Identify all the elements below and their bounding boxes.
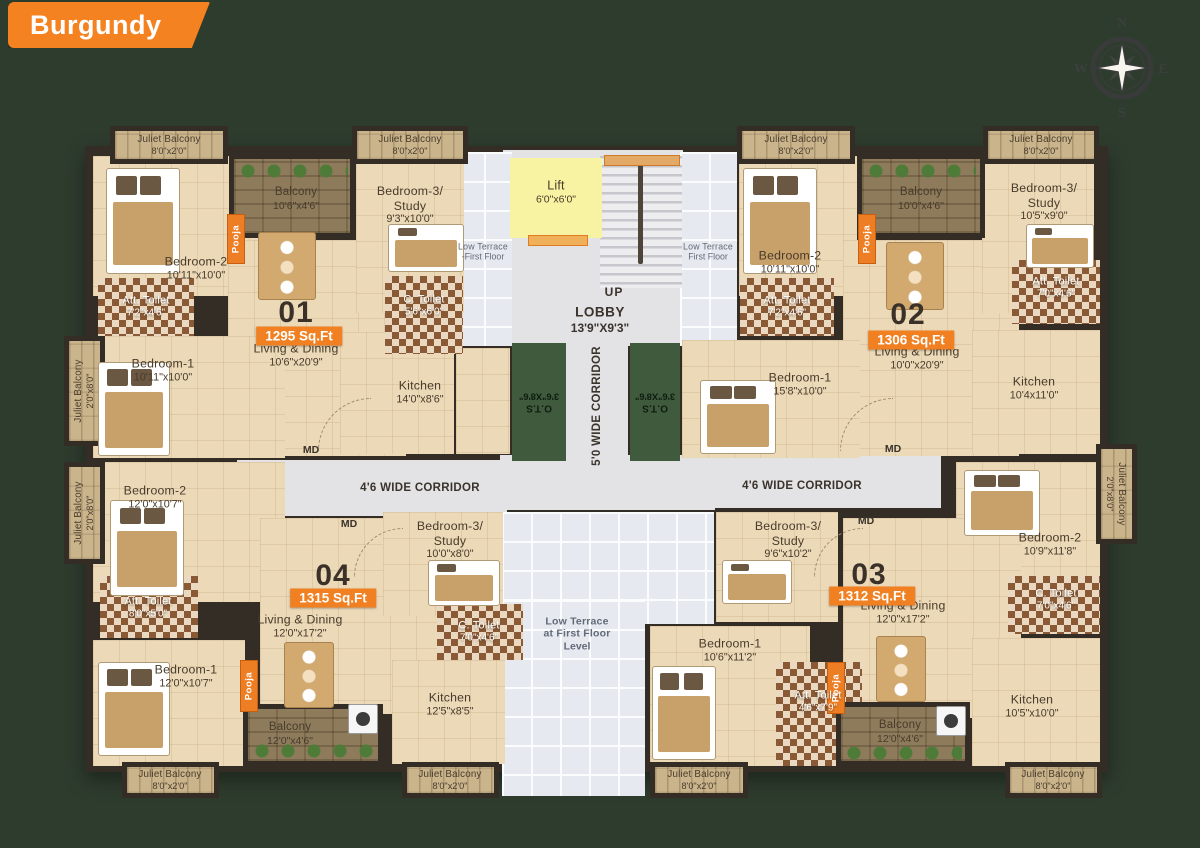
u04-pooja bbox=[240, 660, 258, 712]
dining-table-icon bbox=[876, 636, 926, 702]
low-terrace-right bbox=[680, 152, 737, 346]
bed-icon bbox=[98, 662, 170, 756]
plants-icon bbox=[844, 744, 962, 764]
plants-icon bbox=[866, 162, 976, 182]
juliet-balcony-left-2 bbox=[64, 462, 105, 564]
dining-table-icon bbox=[258, 232, 316, 300]
washing-machine-icon bbox=[348, 704, 378, 734]
floor-plan: Burgundy N W E S Low Terrace-First bbox=[0, 0, 1200, 848]
bed-icon bbox=[98, 362, 170, 456]
unit-04-area-badge: 1315 Sq.Ft bbox=[290, 589, 376, 608]
u02-att-toilet-1 bbox=[740, 278, 834, 336]
bed-icon bbox=[110, 500, 184, 596]
ots-left bbox=[512, 343, 566, 461]
page-title: Burgundy bbox=[8, 10, 162, 41]
u03-kitchen bbox=[972, 638, 1100, 766]
unit-01-number: 01 bbox=[278, 296, 313, 330]
u01-att-toilet bbox=[98, 278, 194, 336]
juliet-balcony-bottom-4 bbox=[1005, 762, 1102, 798]
single-bed-icon bbox=[1026, 224, 1094, 268]
single-bed-icon bbox=[428, 560, 500, 606]
corridor-right-band bbox=[636, 456, 941, 508]
juliet-balcony-bottom-1 bbox=[122, 762, 219, 798]
compass-east-label: E bbox=[1158, 62, 1167, 77]
bed-icon bbox=[743, 168, 817, 274]
u03-c-toilet bbox=[1008, 576, 1100, 634]
compass-west-label: W bbox=[1074, 62, 1088, 77]
dining-table-icon bbox=[284, 642, 334, 708]
lift bbox=[510, 158, 602, 238]
plants-icon bbox=[252, 742, 374, 762]
lift-door-icon bbox=[528, 235, 588, 246]
u03-pooja bbox=[827, 662, 845, 714]
single-bed-icon bbox=[722, 560, 792, 604]
juliet-balcony-bottom-2 bbox=[402, 762, 499, 798]
compass-rose-icon: N W E S bbox=[1072, 14, 1172, 118]
compass-south-label: S bbox=[1118, 106, 1126, 118]
juliet-balcony-top-1 bbox=[110, 126, 228, 164]
u01-c-toilet bbox=[385, 276, 463, 354]
low-terrace-bottom bbox=[502, 600, 645, 796]
unit-01-area-badge: 1295 Sq.Ft bbox=[256, 327, 342, 346]
bed-icon bbox=[700, 380, 776, 454]
plants-icon bbox=[238, 162, 348, 182]
corridor-5ft bbox=[566, 345, 628, 469]
u04-c-toilet bbox=[437, 604, 523, 660]
stair-landing-icon bbox=[604, 155, 680, 166]
bed-icon bbox=[106, 168, 180, 274]
juliet-balcony-top-4 bbox=[983, 126, 1099, 164]
u01-utility bbox=[456, 348, 510, 454]
stairs bbox=[600, 156, 682, 288]
juliet-balcony-top-2 bbox=[352, 126, 468, 164]
bed-icon bbox=[652, 666, 716, 760]
title-banner: Burgundy bbox=[8, 2, 210, 48]
u01-pooja bbox=[227, 214, 245, 264]
juliet-balcony-top-3 bbox=[737, 126, 855, 164]
u02-att-toilet-2 bbox=[1012, 260, 1100, 324]
unit-03-area-badge: 1312 Sq.Ft bbox=[829, 587, 915, 606]
u02-kitchen bbox=[972, 330, 1100, 454]
u04-kitchen bbox=[392, 660, 505, 764]
juliet-balcony-right-1 bbox=[1096, 444, 1137, 544]
compass-north-label: N bbox=[1117, 16, 1127, 31]
bed-icon bbox=[964, 470, 1040, 536]
unit-02-area-badge: 1306 Sq.Ft bbox=[868, 331, 954, 350]
ots-right bbox=[630, 343, 680, 461]
juliet-balcony-bottom-3 bbox=[650, 762, 748, 798]
u02-pooja bbox=[858, 214, 876, 264]
single-bed-icon bbox=[388, 224, 464, 272]
unit-02-number: 02 bbox=[890, 298, 925, 332]
washing-machine-icon bbox=[936, 706, 966, 736]
